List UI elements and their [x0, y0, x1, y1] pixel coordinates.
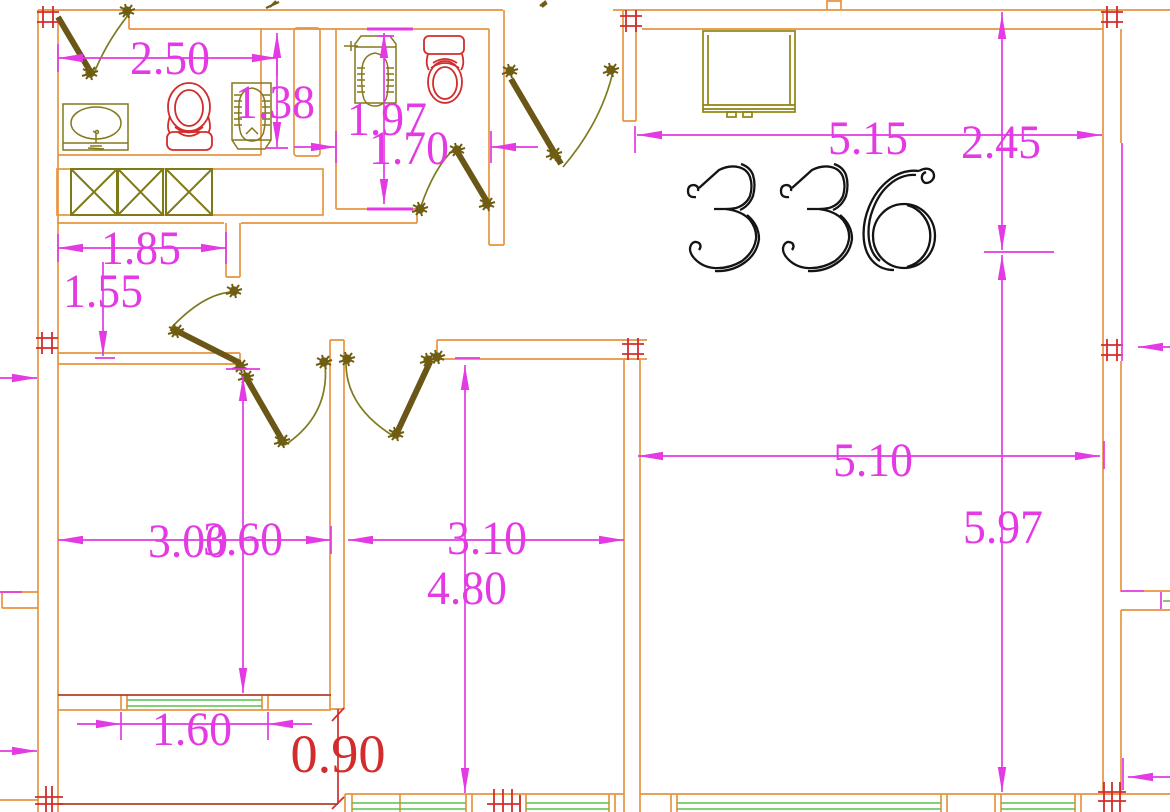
svg-text:2.45: 2.45 — [961, 116, 1041, 169]
svg-text:5.10: 5.10 — [833, 434, 913, 487]
svg-text:0.90: 0.90 — [291, 724, 386, 784]
svg-text:2.50: 2.50 — [130, 32, 210, 85]
svg-text:4.80: 4.80 — [427, 562, 507, 615]
svg-text:1.38: 1.38 — [235, 76, 315, 129]
svg-text:3.10: 3.10 — [447, 512, 527, 565]
svg-text:5.97: 5.97 — [963, 501, 1043, 554]
svg-text:1.55: 1.55 — [63, 265, 143, 318]
svg-text:1.60: 1.60 — [152, 703, 232, 756]
svg-text:1.70: 1.70 — [369, 122, 449, 175]
svg-text:5.15: 5.15 — [828, 112, 908, 165]
svg-text:3.60: 3.60 — [203, 513, 283, 566]
